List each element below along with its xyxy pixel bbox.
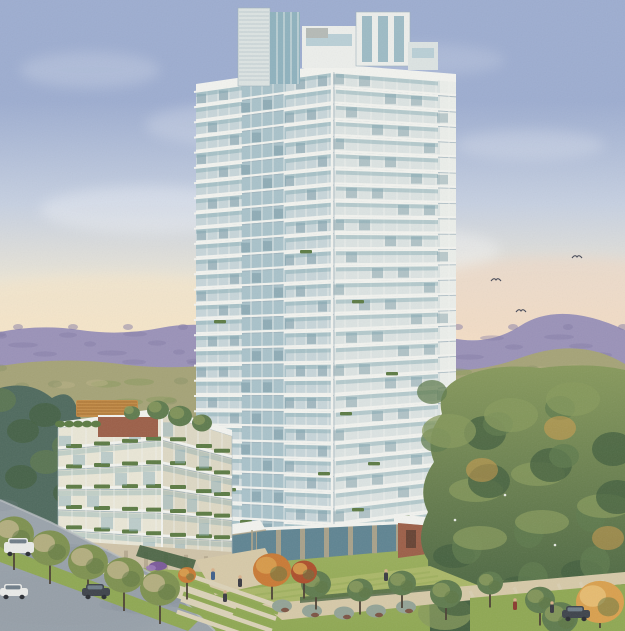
paper-texture — [0, 0, 625, 631]
scene-illustration — [0, 0, 625, 631]
watercolor-rendering — [0, 0, 625, 631]
